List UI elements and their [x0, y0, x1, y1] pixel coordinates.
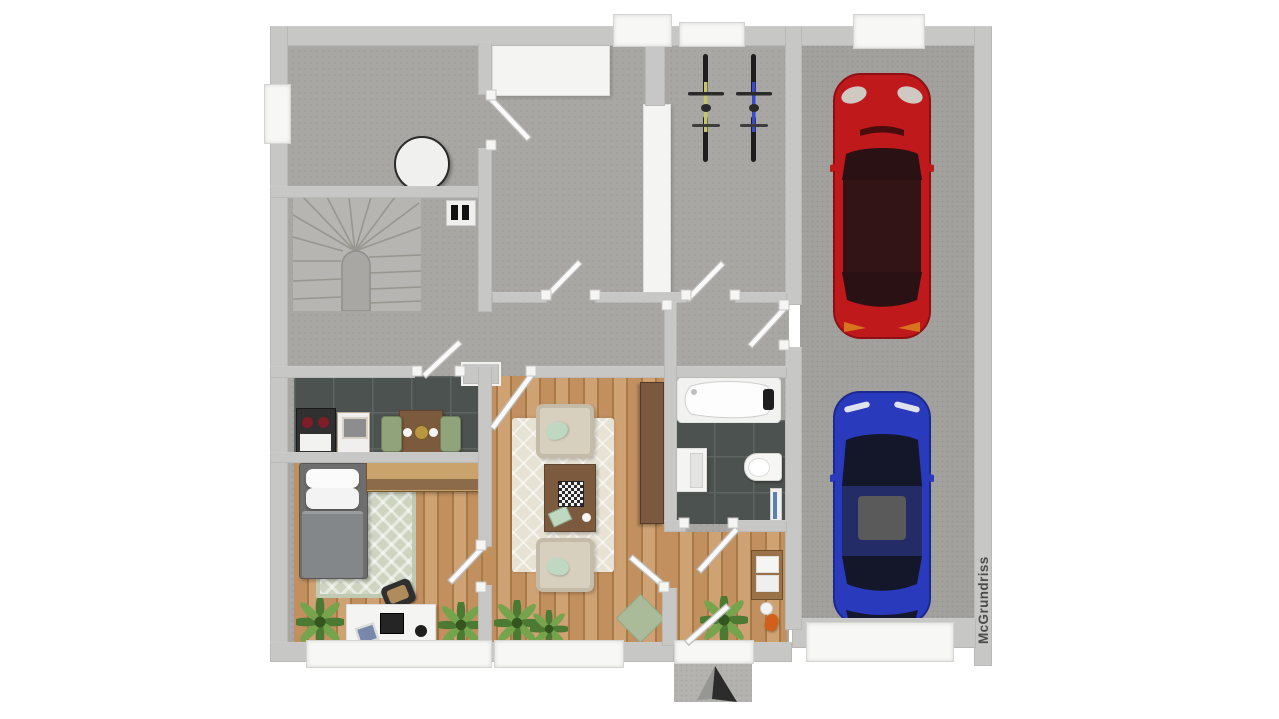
- wall-bath-west: [664, 302, 677, 532]
- bicycle-blue: [736, 52, 772, 167]
- toilet: [744, 453, 782, 481]
- wardrobe-white: [492, 40, 610, 96]
- floor-porch: [674, 658, 752, 702]
- red-car: [830, 70, 934, 342]
- round-table: [394, 136, 450, 192]
- burner: [302, 417, 313, 428]
- vent-slot: [462, 205, 469, 220]
- blue-towel: [773, 492, 777, 519]
- table-centerpiece: [414, 425, 429, 440]
- wall-kitchen-south: [270, 452, 480, 463]
- desk-mug: [415, 625, 427, 637]
- wall-bedroom-east-1: [478, 366, 492, 547]
- window-top-1: [613, 14, 672, 47]
- bathroom-vanity: [676, 448, 707, 492]
- plant: [296, 598, 344, 646]
- storage-white-cabinet: [643, 104, 671, 298]
- stove: [296, 408, 336, 454]
- bed-pillow: [306, 488, 359, 509]
- shelf-towel: [756, 556, 779, 573]
- wall-storage-west: [645, 42, 665, 106]
- sideboard: [640, 382, 664, 524]
- wall-garage-divider-lower: [785, 347, 802, 630]
- floor-plan: McGrundriss: [0, 0, 1279, 719]
- floor-vent: [446, 200, 476, 226]
- bicycle-yellow: [688, 52, 724, 167]
- wall-bath-south-2: [735, 520, 787, 532]
- mint-pillow: [545, 555, 571, 577]
- blue-car: [830, 388, 934, 628]
- bathtub: [677, 377, 781, 423]
- wall-hall-north-1: [492, 292, 547, 303]
- bed-pillow: [306, 469, 359, 488]
- dining-chair-left: [381, 416, 402, 452]
- wall-bottom-entry: [750, 642, 792, 662]
- dining-chair-right: [440, 416, 461, 452]
- burner: [318, 417, 329, 428]
- armchair-top: [536, 404, 594, 458]
- winder-stairs: [293, 197, 421, 311]
- wall-kitchen-north: [270, 366, 415, 378]
- chess-board: [558, 481, 584, 507]
- garage-top-door: [853, 14, 925, 49]
- armchair-bottom: [536, 538, 594, 592]
- watermark: McGrundriss: [976, 552, 996, 644]
- towel-shelf: [751, 550, 783, 600]
- stove-drawer: [300, 434, 331, 451]
- towel-rail: [770, 488, 782, 524]
- laptop: [380, 613, 404, 634]
- plate: [403, 428, 412, 437]
- wall-garage-divider-upper: [785, 26, 802, 305]
- wall-hall-north-3: [735, 292, 787, 303]
- mint-book: [548, 505, 572, 527]
- mint-pillow: [544, 419, 570, 442]
- window-left: [264, 84, 291, 144]
- vanity-basin: [690, 453, 703, 488]
- entry-door: [674, 640, 754, 664]
- wall-vertical-b1: [478, 42, 492, 95]
- plant: [700, 596, 748, 644]
- garage-door: [806, 622, 954, 662]
- dishwasher-window: [342, 417, 368, 439]
- coffee-table: [544, 464, 596, 532]
- dishwasher: [337, 412, 370, 454]
- wall-room-topleft-south: [270, 186, 480, 198]
- desk-chair-seat: [386, 584, 410, 604]
- wall-bedroom-east-2: [478, 585, 492, 648]
- bedroom-dresser: [366, 462, 481, 492]
- window-bottom-bedroom: [306, 640, 492, 668]
- vent-slot: [451, 205, 458, 220]
- window-top-2: [679, 22, 745, 47]
- bed-blanket: [302, 511, 363, 578]
- wall-vertical-b2: [478, 148, 492, 312]
- window-bottom-living: [494, 640, 624, 668]
- plate: [429, 428, 438, 437]
- bed: [299, 463, 368, 579]
- wall-living-north: [530, 366, 787, 378]
- shelf-towel: [756, 575, 779, 592]
- white-cup: [582, 513, 591, 522]
- wall-bath-south-1: [664, 520, 686, 532]
- wall-entry-west: [662, 588, 677, 646]
- dresser-front: [367, 479, 479, 490]
- toilet-bowl: [748, 458, 770, 477]
